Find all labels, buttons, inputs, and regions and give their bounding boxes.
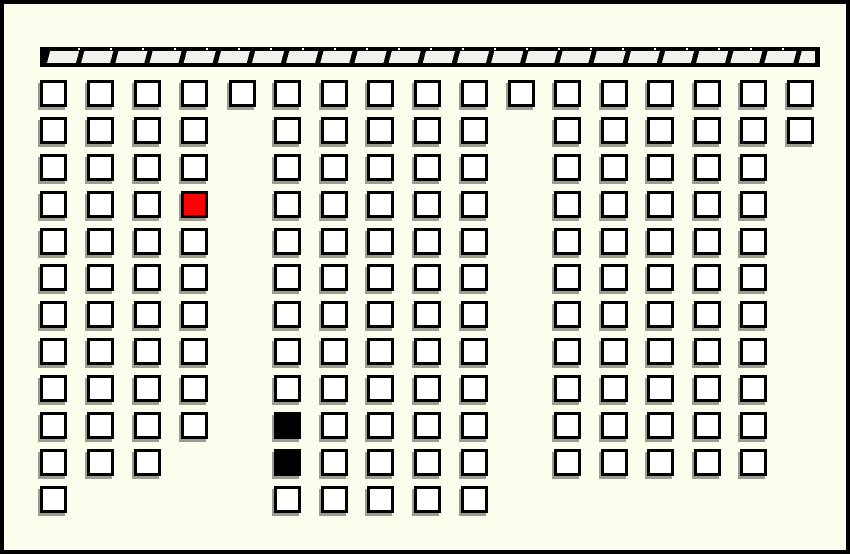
cell-mid-3-row-6[interactable] (367, 264, 394, 291)
cell-mid-4-row-3[interactable] (414, 154, 441, 181)
cell-mid-5-row-9[interactable] (461, 375, 488, 402)
cell-mid-1-row-5[interactable] (274, 228, 301, 255)
hatched-bar-stripes (45, 51, 815, 63)
cell-mid-2-row-2[interactable] (321, 117, 348, 144)
cell-right-1-row-6[interactable] (554, 264, 581, 291)
cell-right-5-row-5[interactable] (740, 228, 767, 255)
cell-left-4-row-5[interactable] (181, 228, 208, 255)
cell-mid-3-row-2[interactable] (367, 117, 394, 144)
cell-left-4-row-1[interactable] (181, 80, 208, 107)
cell-left-2-row-8[interactable] (87, 338, 114, 365)
cell-right-1-row-2[interactable] (554, 117, 581, 144)
cell-right-5-row-10[interactable] (740, 412, 767, 439)
cell-mid-4-row-4[interactable] (414, 191, 441, 218)
cell-left-1-row-4[interactable] (40, 191, 67, 218)
cell-right-1-row-7[interactable] (554, 301, 581, 328)
cell-right-5-row-3[interactable] (740, 154, 767, 181)
cell-right-4-row-3[interactable] (694, 154, 721, 181)
cell-mid-2-row-1[interactable] (321, 80, 348, 107)
hatched-bar (40, 47, 820, 67)
cell-left-4-row-9[interactable] (181, 375, 208, 402)
cell-left-3-row-5[interactable] (134, 228, 161, 255)
cell-right-2-row-2[interactable] (601, 117, 628, 144)
cell-right-3-row-4[interactable] (647, 191, 674, 218)
cell-mid-1-row-6[interactable] (274, 264, 301, 291)
cell-mid-2-row-4[interactable] (321, 191, 348, 218)
hatched-bar-ticks (48, 48, 812, 50)
cell-mid-1-row-4[interactable] (274, 191, 301, 218)
cell-mid-5-row-10[interactable] (461, 412, 488, 439)
cell-mid-1-row-11-black[interactable] (274, 449, 301, 476)
cell-far-right-row-1[interactable] (787, 80, 814, 107)
cell-right-2-row-9[interactable] (601, 375, 628, 402)
cell-right-4-row-8[interactable] (694, 338, 721, 365)
cell-left-1-row-9[interactable] (40, 375, 67, 402)
cell-left-3-row-7[interactable] (134, 301, 161, 328)
cell-left-4-row-10[interactable] (181, 412, 208, 439)
cell-right-1-row-11[interactable] (554, 449, 581, 476)
cell-right-1-row-4[interactable] (554, 191, 581, 218)
cell-left-3-row-9[interactable] (134, 375, 161, 402)
cell-mid-3-row-12[interactable] (367, 486, 394, 513)
cell-mid-1-row-2[interactable] (274, 117, 301, 144)
cell-left-3-row-4[interactable] (134, 191, 161, 218)
cell-mid-4-row-7[interactable] (414, 301, 441, 328)
cell-right-3-row-7[interactable] (647, 301, 674, 328)
cell-mid-5-row-11[interactable] (461, 449, 488, 476)
cell-left-4-row-4-red[interactable] (181, 191, 208, 218)
cell-mid-5-row-3[interactable] (461, 154, 488, 181)
cell-left-3-row-10[interactable] (134, 412, 161, 439)
cell-mid-4-row-6[interactable] (414, 264, 441, 291)
cell-mid-3-row-11[interactable] (367, 449, 394, 476)
cell-right-3-row-9[interactable] (647, 375, 674, 402)
cell-right-2-row-6[interactable] (601, 264, 628, 291)
cell-right-4-row-7[interactable] (694, 301, 721, 328)
cell-mid-2-row-8[interactable] (321, 338, 348, 365)
cell-right-4-row-2[interactable] (694, 117, 721, 144)
cell-right-5-row-8[interactable] (740, 338, 767, 365)
cell-mid-3-row-4[interactable] (367, 191, 394, 218)
cell-left-4-row-8[interactable] (181, 338, 208, 365)
cell-mid-4-row-11[interactable] (414, 449, 441, 476)
cell-mid-2-row-9[interactable] (321, 375, 348, 402)
cell-left-4-row-6[interactable] (181, 264, 208, 291)
cell-right-4-row-10[interactable] (694, 412, 721, 439)
cell-left-3-row-8[interactable] (134, 338, 161, 365)
cell-left-2-row-10[interactable] (87, 412, 114, 439)
cell-mid-5-row-2[interactable] (461, 117, 488, 144)
cell-left-3-row-11[interactable] (134, 449, 161, 476)
cell-aisle-b-row-1[interactable] (508, 80, 535, 107)
cell-left-2-row-9[interactable] (87, 375, 114, 402)
cell-left-3-row-6[interactable] (134, 264, 161, 291)
cell-mid-3-row-9[interactable] (367, 375, 394, 402)
cell-mid-2-row-12[interactable] (321, 486, 348, 513)
cell-right-2-row-8[interactable] (601, 338, 628, 365)
cell-mid-3-row-1[interactable] (367, 80, 394, 107)
cell-mid-3-row-10[interactable] (367, 412, 394, 439)
cell-left-1-row-7[interactable] (40, 301, 67, 328)
cell-right-2-row-10[interactable] (601, 412, 628, 439)
cell-mid-5-row-4[interactable] (461, 191, 488, 218)
cell-right-2-row-7[interactable] (601, 301, 628, 328)
cell-mid-3-row-5[interactable] (367, 228, 394, 255)
cell-left-2-row-3[interactable] (87, 154, 114, 181)
cell-left-2-row-1[interactable] (87, 80, 114, 107)
cell-right-4-row-6[interactable] (694, 264, 721, 291)
cell-right-1-row-10[interactable] (554, 412, 581, 439)
cell-mid-2-row-5[interactable] (321, 228, 348, 255)
cell-left-2-row-7[interactable] (87, 301, 114, 328)
cell-right-3-row-10[interactable] (647, 412, 674, 439)
cell-left-3-row-3[interactable] (134, 154, 161, 181)
cell-left-4-row-7[interactable] (181, 301, 208, 328)
cell-right-2-row-4[interactable] (601, 191, 628, 218)
cell-left-3-row-1[interactable] (134, 80, 161, 107)
cell-left-1-row-2[interactable] (40, 117, 67, 144)
cell-mid-2-row-11[interactable] (321, 449, 348, 476)
cell-left-2-row-6[interactable] (87, 264, 114, 291)
cell-mid-5-row-8[interactable] (461, 338, 488, 365)
cell-mid-1-row-9[interactable] (274, 375, 301, 402)
cell-mid-2-row-6[interactable] (321, 264, 348, 291)
cell-mid-1-row-7[interactable] (274, 301, 301, 328)
cell-left-2-row-5[interactable] (87, 228, 114, 255)
cell-mid-2-row-10[interactable] (321, 412, 348, 439)
cell-right-5-row-9[interactable] (740, 375, 767, 402)
cell-left-1-row-1[interactable] (40, 80, 67, 107)
cell-mid-4-row-5[interactable] (414, 228, 441, 255)
cell-right-4-row-1[interactable] (694, 80, 721, 107)
cell-right-2-row-3[interactable] (601, 154, 628, 181)
cell-right-4-row-9[interactable] (694, 375, 721, 402)
cell-mid-4-row-12[interactable] (414, 486, 441, 513)
cell-left-1-row-11[interactable] (40, 449, 67, 476)
cell-mid-1-row-3[interactable] (274, 154, 301, 181)
cell-aisle-a-row-1[interactable] (229, 80, 256, 107)
cell-mid-3-row-7[interactable] (367, 301, 394, 328)
cell-left-3-row-2[interactable] (134, 117, 161, 144)
cell-right-1-row-3[interactable] (554, 154, 581, 181)
cell-left-4-row-2[interactable] (181, 117, 208, 144)
cell-right-3-row-11[interactable] (647, 449, 674, 476)
cell-mid-4-row-9[interactable] (414, 375, 441, 402)
cell-right-2-row-1[interactable] (601, 80, 628, 107)
cell-left-1-row-3[interactable] (40, 154, 67, 181)
cell-mid-1-row-8[interactable] (274, 338, 301, 365)
cell-mid-5-row-7[interactable] (461, 301, 488, 328)
cell-right-5-row-7[interactable] (740, 301, 767, 328)
cell-right-2-row-5[interactable] (601, 228, 628, 255)
cell-mid-5-row-12[interactable] (461, 486, 488, 513)
cell-mid-4-row-8[interactable] (414, 338, 441, 365)
cell-left-1-row-10[interactable] (40, 412, 67, 439)
cell-left-2-row-2[interactable] (87, 117, 114, 144)
cell-right-3-row-8[interactable] (647, 338, 674, 365)
cell-right-1-row-8[interactable] (554, 338, 581, 365)
cell-right-3-row-5[interactable] (647, 228, 674, 255)
cell-left-2-row-11[interactable] (87, 449, 114, 476)
cell-right-2-row-11[interactable] (601, 449, 628, 476)
cell-right-5-row-11[interactable] (740, 449, 767, 476)
cell-right-4-row-11[interactable] (694, 449, 721, 476)
cell-right-4-row-4[interactable] (694, 191, 721, 218)
cell-right-1-row-1[interactable] (554, 80, 581, 107)
cell-right-3-row-1[interactable] (647, 80, 674, 107)
cell-far-right-row-2[interactable] (787, 117, 814, 144)
cell-right-5-row-2[interactable] (740, 117, 767, 144)
cell-mid-3-row-3[interactable] (367, 154, 394, 181)
cell-mid-4-row-2[interactable] (414, 117, 441, 144)
cell-mid-1-row-10-black[interactable] (274, 412, 301, 439)
cell-mid-2-row-7[interactable] (321, 301, 348, 328)
cell-right-5-row-1[interactable] (740, 80, 767, 107)
cell-mid-5-row-5[interactable] (461, 228, 488, 255)
cell-mid-1-row-1[interactable] (274, 80, 301, 107)
cell-mid-2-row-3[interactable] (321, 154, 348, 181)
cell-right-3-row-6[interactable] (647, 264, 674, 291)
cell-left-1-row-5[interactable] (40, 228, 67, 255)
cell-left-1-row-6[interactable] (40, 264, 67, 291)
cell-left-2-row-4[interactable] (87, 191, 114, 218)
cell-right-3-row-3[interactable] (647, 154, 674, 181)
cell-right-1-row-9[interactable] (554, 375, 581, 402)
cell-mid-1-row-12[interactable] (274, 486, 301, 513)
cell-right-1-row-5[interactable] (554, 228, 581, 255)
cell-left-1-row-8[interactable] (40, 338, 67, 365)
floor-map-frame (0, 0, 850, 554)
cell-mid-5-row-1[interactable] (461, 80, 488, 107)
cell-left-4-row-3[interactable] (181, 154, 208, 181)
cell-mid-5-row-6[interactable] (461, 264, 488, 291)
cell-mid-3-row-8[interactable] (367, 338, 394, 365)
cell-right-5-row-6[interactable] (740, 264, 767, 291)
cell-right-3-row-2[interactable] (647, 117, 674, 144)
cell-left-1-row-12[interactable] (40, 486, 67, 513)
cell-right-5-row-4[interactable] (740, 191, 767, 218)
cell-right-4-row-5[interactable] (694, 228, 721, 255)
cell-mid-4-row-10[interactable] (414, 412, 441, 439)
cell-mid-4-row-1[interactable] (414, 80, 441, 107)
